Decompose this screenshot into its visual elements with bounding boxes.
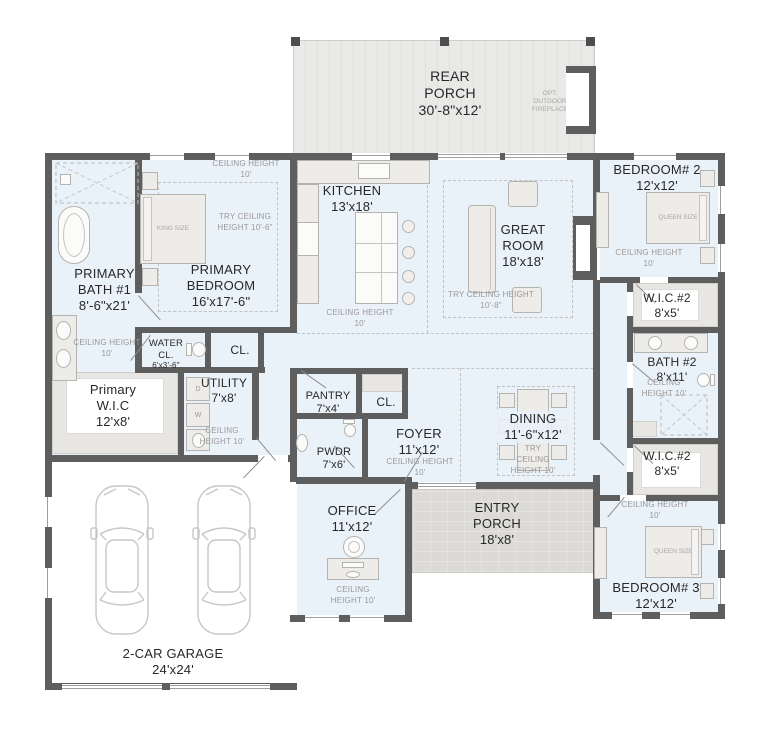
window (718, 578, 725, 604)
utility-ceiling-note: CEILING HEIGHT 10' (192, 426, 252, 448)
primary-bedroom-tray-note: TRY CEILING HEIGHT 10'-6" (203, 212, 287, 234)
wall (476, 482, 595, 489)
great-room-fireplace (573, 216, 597, 280)
wall (627, 438, 725, 444)
utility-dims: 7'x8' (196, 391, 252, 406)
pantry-name: PANTRY (300, 390, 356, 403)
rear-porch-dims: 30'-8"x12' (415, 102, 485, 119)
floor-plan: REAR PORCH 30'-8"x12' OPT. OUTDOOR FIREP… (0, 0, 768, 732)
wall (296, 368, 408, 374)
sliding-door (438, 153, 500, 160)
garage-label: 2-CAR GARAGE 24'x24' (113, 646, 233, 678)
wic2-lower-name: W.I.C.#2 (630, 449, 704, 464)
nightstand (142, 172, 158, 190)
window (660, 612, 690, 619)
primary-bedroom-dims: 16'x17'-6" (176, 294, 266, 310)
garage-door (170, 684, 270, 691)
nightstand (700, 170, 715, 187)
wall (205, 333, 211, 369)
wall (593, 280, 600, 440)
porch-post (291, 37, 300, 46)
office-name: OFFICE (316, 503, 388, 519)
toilet-bowl (697, 373, 710, 387)
kitchen-dims: 13'x18' (307, 199, 397, 215)
sink (648, 336, 662, 350)
shower (660, 394, 708, 436)
great-room-dims: 18'x18' (488, 254, 558, 270)
primary-wic-dims: 12'x8' (78, 414, 148, 430)
nightstand (142, 268, 158, 286)
queen-bed-label: QUEEN SIZE (654, 548, 693, 556)
bathtub (58, 206, 90, 264)
washer: W (186, 403, 210, 427)
wall (405, 484, 412, 622)
ceiling-break-line (297, 333, 593, 334)
hall-closet-label: CL. (222, 343, 258, 358)
water-closet-dims: 6'x3'-6" (142, 361, 190, 371)
pantry-label: PANTRY 7'x4' (300, 390, 356, 417)
ceiling-break-line (427, 160, 428, 333)
toilet-bowl (192, 342, 206, 357)
powder-label: PWDR 7'x6' (306, 446, 362, 473)
bedroom2-name: BEDROOM# 2 (611, 162, 703, 178)
dining-chair (499, 393, 515, 408)
primary-bedroom-label: PRIMARY BEDROOM 16'x17'-6" (176, 262, 266, 310)
dresser (594, 527, 607, 579)
window (305, 615, 339, 622)
pillows (691, 529, 699, 575)
armchair (508, 181, 538, 207)
foyer-closet-shelf (362, 374, 406, 392)
primary-bedroom-name: PRIMARY BEDROOM (176, 262, 266, 294)
window (612, 612, 642, 619)
outdoor-fireplace-icon (566, 66, 596, 134)
office-ceiling-note: CEILING HEIGHT 10' (320, 585, 386, 607)
king-bed-label: KING SIZE (157, 225, 189, 233)
fireplace-opening (566, 73, 589, 126)
primary-bedroom-ceiling-note: CEILING HEIGHT 10' (208, 159, 284, 181)
primary-wic-label: Primary W.I.C 12'x8' (78, 382, 148, 430)
kitchen-ceiling-note: CEILING HEIGHT 10' (322, 308, 398, 330)
bedroom3-dims: 12'x12' (610, 596, 702, 612)
office-desk (327, 558, 379, 580)
toilet-bowl (344, 424, 356, 437)
window (718, 524, 725, 550)
entry-porch-label: ENTRY PORCH 18'x8' (467, 500, 527, 548)
window (352, 153, 390, 160)
garage-door (62, 684, 162, 691)
bath2-linen-shelf (631, 421, 657, 437)
porch-post (440, 37, 449, 46)
rear-porch-name: REAR PORCH (415, 68, 485, 102)
ceiling-break-line (460, 368, 461, 482)
dining-name: DINING (494, 411, 572, 427)
bar-stool (402, 220, 415, 233)
foyer-label: FOYER 11'x12' (383, 426, 455, 458)
wall (593, 475, 600, 505)
ceiling-break-line (412, 368, 593, 369)
wic2-lower-dims: 8'x5' (630, 464, 704, 479)
primary-bath-ceiling-note: CEILING HEIGHT 10' (72, 338, 142, 360)
window (45, 568, 52, 598)
entry-porch-dims: 18'x8' (467, 532, 527, 548)
sink (56, 349, 71, 368)
wall (135, 327, 297, 333)
queen-bed: QUEEN SIZE (645, 526, 702, 578)
queen-bed: QUEEN SIZE (646, 192, 710, 244)
bedroom3-ceiling-note: CEILING HEIGHT 10' (620, 500, 690, 522)
bar-stool (402, 246, 415, 259)
sink (56, 321, 71, 340)
rear-porch-label: REAR PORCH 30'-8"x12' (415, 68, 485, 119)
entry-porch-name: ENTRY PORCH (467, 500, 527, 532)
bedroom3-name: BEDROOM# 3 (610, 580, 702, 596)
foyer-name: FOYER (383, 426, 455, 442)
window (45, 497, 52, 527)
window (718, 186, 725, 214)
shower-valve (60, 174, 71, 185)
pillows (143, 197, 152, 261)
nightstand (700, 529, 714, 545)
plant-icon (343, 536, 365, 558)
dining-ceiling-note: TRY CEILING HEIGHT 10' (509, 444, 557, 476)
pillows (699, 195, 707, 241)
porch-post (586, 37, 595, 46)
water-closet-label: WATER CL. 6'x3'-6" (142, 338, 190, 371)
wall (252, 373, 259, 440)
office-dims: 11'x12' (316, 519, 388, 535)
utility-label: UTILITY 7'x8' (196, 376, 252, 405)
garage-name: 2-CAR GARAGE (113, 646, 233, 662)
foyer-dims: 11'x12' (383, 442, 455, 458)
utility-name: UTILITY (196, 376, 252, 391)
door-opening (627, 362, 633, 388)
queen-bed-label: QUEEN SIZE (658, 214, 697, 222)
nightstand (700, 583, 714, 599)
toilet-tank (710, 374, 715, 386)
corridor-opening (593, 440, 600, 475)
great-room-name: GREAT ROOM (488, 222, 558, 254)
dining-chair (551, 393, 567, 408)
foyer-ceiling-note: CEILING HEIGHT 10' (385, 457, 455, 479)
primary-bath-dims: 8'-6"x21' (62, 298, 147, 314)
primary-bath-label: PRIMARY BATH #1 8'-6"x21' (62, 266, 147, 314)
wall (258, 333, 264, 369)
kitchen-stove (297, 222, 319, 256)
sliding-door (505, 153, 567, 160)
wic2-upper-name: W.I.C.#2 (630, 291, 704, 306)
bar-stool (402, 270, 415, 283)
wall (290, 153, 297, 333)
kitchen-name: KITCHEN (307, 183, 397, 199)
wall (290, 368, 297, 482)
wic2-upper-dims: 8'x5' (630, 306, 704, 321)
office-label: OFFICE 11'x12' (316, 503, 388, 535)
powder-dims: 7'x6' (306, 459, 362, 472)
pantry-dims: 7'x4' (300, 403, 356, 416)
wic2-upper-label: W.I.C.#2 8'x5' (630, 291, 704, 320)
wic2-lower-label: W.I.C.#2 8'x5' (630, 449, 704, 478)
wall (402, 368, 408, 418)
entry-door-opening (418, 482, 476, 489)
dining-label: DINING 11'-6"x12' (494, 411, 572, 443)
fireplace-opening (576, 225, 590, 271)
great-room-label: GREAT ROOM 18'x18' (488, 222, 558, 270)
kitchen-sink (358, 163, 390, 179)
dining-dims: 11'-6"x12' (494, 427, 572, 443)
hall-opening (290, 333, 297, 368)
kitchen-label: KITCHEN 13'x18' (307, 183, 397, 215)
primary-wic-name: Primary W.I.C (78, 382, 148, 414)
kitchen-island (355, 212, 398, 304)
great-room-ceiling-note: TRY CEILING HEIGHT 10'-8" (448, 290, 534, 312)
bedroom2-ceiling-note: CEILING HEIGHT 10' (614, 248, 684, 270)
water-closet-name: WATER CL. (142, 338, 190, 361)
king-bed: KING SIZE (140, 194, 206, 264)
wall (45, 153, 52, 690)
dresser (596, 192, 609, 248)
window (718, 244, 725, 272)
car-icon (90, 482, 154, 638)
bar-stool (402, 292, 415, 305)
bedroom2-label: BEDROOM# 2 12'x12' (611, 162, 703, 194)
powder-name: PWDR (306, 446, 362, 459)
window (350, 615, 384, 622)
wall (356, 374, 362, 418)
nightstand (700, 247, 715, 264)
door-opening (640, 277, 668, 283)
primary-bath-name: PRIMARY BATH #1 (62, 266, 147, 298)
bath2-name: BATH #2 (634, 355, 710, 370)
bedroom3-label: BEDROOM# 3 12'x12' (610, 580, 702, 612)
window (150, 153, 184, 160)
garage-dims: 24'x24' (113, 662, 233, 678)
window (634, 153, 676, 160)
sink (684, 336, 698, 350)
car-icon (192, 482, 256, 638)
wall (362, 419, 368, 482)
foyer-closet-label: CL. (368, 395, 404, 410)
wall (178, 373, 184, 455)
